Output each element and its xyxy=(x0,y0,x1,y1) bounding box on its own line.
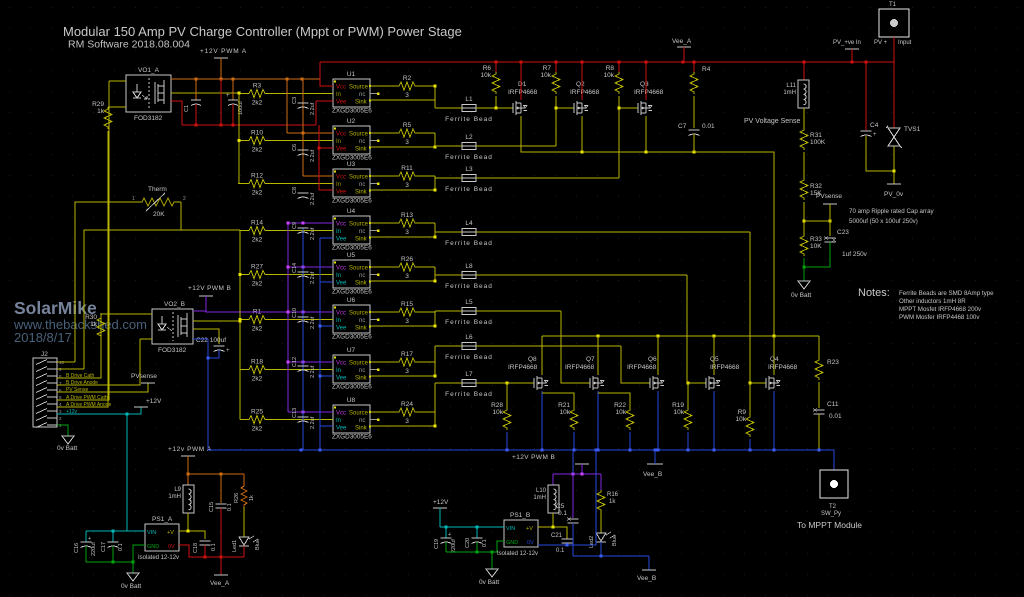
svg-text:Q3: Q3 xyxy=(640,81,649,88)
svg-text:+V: +V xyxy=(167,530,174,536)
svg-text:Source: Source xyxy=(349,266,369,272)
svg-text:2.2uf: 2.2uf xyxy=(310,271,316,284)
svg-text:1: 1 xyxy=(132,196,135,202)
svg-text:Vee: Vee xyxy=(336,281,347,287)
svg-text:Sink: Sink xyxy=(355,190,368,196)
svg-text:L8: L8 xyxy=(465,263,473,270)
svg-text:ZXGD3005E6: ZXGD3005E6 xyxy=(332,245,372,252)
svg-text:Source: Source xyxy=(349,222,369,228)
svg-text:10K: 10K xyxy=(810,243,822,250)
svg-text:PWM Mosfer IRFP4468 100v: PWM Mosfer IRFP4468 100v xyxy=(899,314,980,321)
svg-text:10k: 10k xyxy=(736,416,747,423)
svg-text:L11: L11 xyxy=(786,83,796,89)
svg-text:3: 3 xyxy=(405,182,409,189)
svg-text:VIN: VIN xyxy=(506,526,515,532)
svg-text:nc: nc xyxy=(359,92,365,98)
svg-text:R3: R3 xyxy=(253,83,262,90)
svg-text:IRFP4668: IRFP4668 xyxy=(768,364,798,371)
svg-text:R23: R23 xyxy=(827,359,839,366)
svg-text:Ferrite Bead: Ferrite Bead xyxy=(445,154,493,161)
svg-text:0V: 0V xyxy=(168,544,175,550)
svg-text:Source: Source xyxy=(349,361,369,367)
svg-text:3: 3 xyxy=(405,273,409,280)
svg-text:U5: U5 xyxy=(347,252,356,259)
svg-text:PV_0v: PV_0v xyxy=(884,191,904,198)
svg-text:ZXGD3005E6: ZXGD3005E6 xyxy=(332,289,372,296)
svg-text:R33: R33 xyxy=(810,236,822,243)
svg-text:VIN: VIN xyxy=(147,530,156,536)
svg-text:Sink: Sink xyxy=(355,426,368,432)
svg-text:R5: R5 xyxy=(403,122,412,129)
svg-text:Vee: Vee xyxy=(336,237,347,243)
svg-text:Q5: Q5 xyxy=(710,356,719,363)
svg-text:Vcc: Vcc xyxy=(336,222,346,228)
svg-text:20K: 20K xyxy=(153,211,165,218)
svg-text:R28: R28 xyxy=(491,402,503,409)
svg-text:IRFP4668: IRFP4668 xyxy=(508,364,538,371)
svg-text:1k: 1k xyxy=(609,499,616,505)
svg-text:R24: R24 xyxy=(401,401,413,408)
svg-text:C18: C18 xyxy=(193,543,199,553)
svg-text:L9: L9 xyxy=(174,487,181,493)
svg-text:10k: 10k xyxy=(560,409,571,416)
svg-text:220uf: 220uf xyxy=(91,542,97,556)
svg-text:R26: R26 xyxy=(234,493,240,503)
svg-text:PS1_A: PS1_A xyxy=(152,516,173,523)
svg-text:L5: L5 xyxy=(465,299,473,306)
svg-text:Q2: Q2 xyxy=(576,81,585,88)
svg-text:In: In xyxy=(336,368,341,374)
svg-text:0v Batt: 0v Batt xyxy=(791,292,811,299)
svg-text:Sink: Sink xyxy=(355,237,368,243)
svg-text:10k: 10k xyxy=(616,409,627,416)
svg-text:Therm: Therm xyxy=(148,186,167,193)
svg-text:Vcc: Vcc xyxy=(336,361,346,367)
svg-text:1mH: 1mH xyxy=(783,90,796,96)
svg-text:1k: 1k xyxy=(249,495,255,501)
svg-text:Vee_A: Vee_A xyxy=(210,580,230,587)
svg-text:Vee_B: Vee_B xyxy=(643,471,662,478)
svg-text:Vcc: Vcc xyxy=(336,266,346,272)
svg-text:Vee: Vee xyxy=(336,326,347,332)
svg-text:2k2: 2k2 xyxy=(252,147,263,154)
svg-text:U1: U1 xyxy=(347,71,356,78)
svg-text:T1: T1 xyxy=(889,2,897,8)
svg-text:R17: R17 xyxy=(401,351,413,358)
svg-text:2k2: 2k2 xyxy=(252,100,263,107)
svg-text:0V: 0V xyxy=(527,540,534,546)
svg-text:1uf 250v: 1uf 250v xyxy=(842,251,868,258)
svg-text:3: 3 xyxy=(405,92,409,99)
svg-text:R11: R11 xyxy=(401,165,413,172)
svg-text:C12: C12 xyxy=(292,357,298,367)
svg-text:nc: nc xyxy=(359,418,365,424)
svg-text:RM Software 2018.08.004: RM Software 2018.08.004 xyxy=(68,39,190,51)
svg-text:Blue: Blue xyxy=(612,535,618,546)
svg-text:J2: J2 xyxy=(41,351,48,358)
svg-text:nc: nc xyxy=(359,368,365,374)
svg-text:2.2uf: 2.2uf xyxy=(310,416,316,429)
svg-text:PVsense: PVsense xyxy=(131,373,157,380)
svg-text:L7: L7 xyxy=(465,371,473,378)
svg-text:R9: R9 xyxy=(738,409,747,416)
svg-text:3: 3 xyxy=(405,368,409,375)
svg-text:Vee: Vee xyxy=(336,376,347,382)
svg-text:+12V PWM B: +12V PWM B xyxy=(188,285,231,292)
svg-text:2k2: 2k2 xyxy=(252,190,263,197)
svg-text:Input: Input xyxy=(898,40,912,46)
svg-text:Led2: Led2 xyxy=(589,536,595,548)
svg-text:10k: 10k xyxy=(481,72,492,79)
svg-text:2.2uf: 2.2uf xyxy=(310,192,316,205)
svg-text:Blue: Blue xyxy=(255,539,261,550)
svg-text:220uf: 220uf xyxy=(451,539,457,553)
svg-text:IRFP4668: IRFP4668 xyxy=(508,89,538,96)
svg-text:U6: U6 xyxy=(347,297,356,304)
svg-text:10k: 10k xyxy=(541,72,552,79)
svg-text:R30: R30 xyxy=(85,314,97,321)
svg-text:IRFP4668: IRFP4668 xyxy=(634,89,664,96)
svg-text:C1: C1 xyxy=(184,105,190,112)
svg-text:IRFP4668: IRFP4668 xyxy=(627,364,657,371)
svg-text:C3: C3 xyxy=(292,97,298,104)
svg-text:Vee: Vee xyxy=(336,100,347,106)
svg-text:Source: Source xyxy=(349,132,369,138)
svg-text:R27: R27 xyxy=(251,264,263,271)
svg-text:GND: GND xyxy=(147,544,159,550)
svg-text:0.1: 0.1 xyxy=(211,543,217,551)
svg-text:1mH: 1mH xyxy=(168,494,181,500)
svg-text:nc: nc xyxy=(359,229,365,235)
svg-text:Ferrite Bead: Ferrite Bead xyxy=(445,319,493,326)
svg-text:R32: R32 xyxy=(810,183,822,190)
svg-text:nc: nc xyxy=(359,273,365,279)
svg-text:C4: C4 xyxy=(870,122,879,129)
svg-text:Ferrite Bead: Ferrite Bead xyxy=(445,354,493,361)
svg-text:C21: C21 xyxy=(551,533,563,539)
svg-text:Ferrite Bead: Ferrite Bead xyxy=(445,186,493,193)
svg-text:L10: L10 xyxy=(536,488,547,494)
svg-text:5000uf (50 x 100uf 250v): 5000uf (50 x 100uf 250v) xyxy=(849,218,918,225)
svg-text:+: + xyxy=(873,132,877,138)
svg-text:L2: L2 xyxy=(465,134,473,141)
svg-text:2.2uf: 2.2uf xyxy=(310,149,316,162)
svg-text:Modular 150 Amp PV Charge Cont: Modular 150 Amp PV Charge Controller (Mp… xyxy=(63,24,462,39)
svg-text:0.01: 0.01 xyxy=(829,413,842,420)
svg-text:0v Batt: 0v Batt xyxy=(479,579,499,586)
svg-text:Led1: Led1 xyxy=(232,540,238,552)
svg-text:R19: R19 xyxy=(672,402,684,409)
svg-text:Q6: Q6 xyxy=(648,356,657,363)
svg-text:Vcc: Vcc xyxy=(336,85,346,91)
svg-text:2.2uf: 2.2uf xyxy=(310,316,316,329)
svg-text:ZXGD3005E6: ZXGD3005E6 xyxy=(332,384,372,391)
svg-text:L6: L6 xyxy=(465,334,473,341)
svg-text:R25: R25 xyxy=(251,409,263,416)
svg-text:R26: R26 xyxy=(401,256,413,263)
svg-text:R29: R29 xyxy=(92,101,104,108)
svg-text:0.1: 0.1 xyxy=(556,548,565,554)
svg-text:C22 100uf: C22 100uf xyxy=(196,337,226,344)
svg-text:Vcc: Vcc xyxy=(336,132,346,138)
svg-text:Vee: Vee xyxy=(336,426,347,432)
svg-text:Isolated 12-12v: Isolated 12-12v xyxy=(138,555,179,561)
svg-text:In: In xyxy=(336,92,341,98)
svg-text:10k: 10k xyxy=(604,72,615,79)
svg-text:PV Voltage Sense: PV Voltage Sense xyxy=(744,118,801,125)
svg-text:In: In xyxy=(336,229,341,235)
svg-text:TVS1: TVS1 xyxy=(904,126,921,133)
svg-text:R18: R18 xyxy=(251,359,263,366)
svg-text:PV_+ve In: PV_+ve In xyxy=(833,40,861,46)
svg-text:C13: C13 xyxy=(292,408,298,418)
svg-text:C8: C8 xyxy=(292,187,298,194)
svg-text:10k: 10k xyxy=(493,409,504,416)
svg-text:Q7: Q7 xyxy=(586,356,595,363)
svg-text:+12V PWM B: +12V PWM B xyxy=(512,454,555,461)
svg-text:10k: 10k xyxy=(674,409,685,416)
svg-text:Other inductors 1mH 8R: Other inductors 1mH 8R xyxy=(899,298,966,305)
svg-text:R10: R10 xyxy=(251,130,263,137)
svg-text:Q8: Q8 xyxy=(528,356,537,363)
svg-text:Vee: Vee xyxy=(336,190,347,196)
svg-text:C7: C7 xyxy=(678,123,687,130)
svg-text:2.2uf: 2.2uf xyxy=(310,102,316,115)
svg-text:R31: R31 xyxy=(810,132,822,139)
svg-text:Vcc: Vcc xyxy=(336,175,346,181)
svg-text:GND: GND xyxy=(506,540,518,546)
svg-text:+12V: +12V xyxy=(146,398,162,405)
svg-text:1k: 1k xyxy=(90,321,98,328)
svg-text:R8: R8 xyxy=(606,65,615,72)
svg-text:Vcc: Vcc xyxy=(336,311,346,317)
svg-text:Source: Source xyxy=(349,411,369,417)
svg-text:+12V: +12V xyxy=(433,499,449,506)
svg-text:Isolated 12-12v: Isolated 12-12v xyxy=(497,551,538,557)
svg-text:C15: C15 xyxy=(209,502,215,512)
svg-text:Ferrite Beads are SMD 8Amp typ: Ferrite Beads are SMD 8Amp type xyxy=(899,290,994,297)
svg-text:Ferrite Bead: Ferrite Bead xyxy=(445,283,493,290)
svg-text:1mH: 1mH xyxy=(533,495,546,501)
svg-text:Sink: Sink xyxy=(355,281,368,287)
svg-text:2018/8/17: 2018/8/17 xyxy=(14,330,72,345)
svg-text:C6: C6 xyxy=(292,144,298,151)
svg-text:PVsense: PVsense xyxy=(816,193,842,200)
svg-text:nc: nc xyxy=(359,139,365,145)
svg-text:U2: U2 xyxy=(347,118,356,125)
svg-text:70 amp Ripple rated Cap array: 70 amp Ripple rated Cap array xyxy=(849,208,935,215)
svg-text:+: + xyxy=(88,536,91,542)
svg-text:In: In xyxy=(336,182,341,188)
svg-text:In: In xyxy=(336,318,341,324)
svg-text:VO1_A: VO1_A xyxy=(138,67,160,74)
svg-text:FOD3182: FOD3182 xyxy=(134,115,163,122)
svg-text:2: 2 xyxy=(183,196,186,202)
svg-text:PS1_B: PS1_B xyxy=(510,512,530,519)
svg-text:Vee: Vee xyxy=(336,147,347,153)
svg-text:Vcc: Vcc xyxy=(336,411,346,417)
svg-text:2k2: 2k2 xyxy=(252,376,263,383)
svg-text:3: 3 xyxy=(405,318,409,325)
svg-text:U3: U3 xyxy=(347,161,356,168)
svg-text:U4: U4 xyxy=(347,208,356,215)
svg-text:C11: C11 xyxy=(827,401,839,408)
svg-text:Source: Source xyxy=(349,85,369,91)
svg-text:C16: C16 xyxy=(74,543,80,553)
svg-text:C10: C10 xyxy=(292,308,298,318)
svg-text:L1: L1 xyxy=(465,96,473,103)
svg-text:+12V PWM A: +12V PWM A xyxy=(200,48,247,55)
svg-text:1k: 1k xyxy=(97,108,105,115)
svg-text:C23: C23 xyxy=(837,229,849,236)
svg-text:0.1: 0.1 xyxy=(558,510,567,517)
svg-text:R4: R4 xyxy=(702,66,711,73)
svg-text:R22: R22 xyxy=(614,402,626,409)
svg-text:In: In xyxy=(336,139,341,145)
svg-text:+12v PWM A: +12v PWM A xyxy=(168,446,212,453)
svg-text:Sink: Sink xyxy=(355,376,368,382)
svg-text:L3: L3 xyxy=(465,166,473,173)
svg-text:Sink: Sink xyxy=(355,326,368,332)
svg-text:0v Batt: 0v Batt xyxy=(121,583,141,590)
svg-text:U7: U7 xyxy=(347,347,356,354)
svg-text:ZXGD3005E6: ZXGD3005E6 xyxy=(332,198,372,205)
svg-text:2k2: 2k2 xyxy=(252,326,263,333)
svg-text:2.2uf: 2.2uf xyxy=(310,227,316,240)
svg-text:nc: nc xyxy=(359,182,365,188)
svg-text:IRFP4668: IRFP4668 xyxy=(570,89,600,96)
svg-text:R7: R7 xyxy=(543,65,552,72)
svg-text:Q4: Q4 xyxy=(770,356,779,363)
svg-text:C17: C17 xyxy=(101,542,107,552)
svg-text:ZXGD3005E6: ZXGD3005E6 xyxy=(332,334,372,341)
svg-text:0.1: 0.1 xyxy=(118,543,124,551)
svg-text:Notes:: Notes: xyxy=(858,287,890,299)
svg-text:3: 3 xyxy=(405,418,409,425)
svg-text:T2: T2 xyxy=(829,504,837,510)
svg-text:To MPPT Module: To MPPT Module xyxy=(797,520,862,530)
svg-text:+V: +V xyxy=(526,526,533,532)
svg-text:0.1: 0.1 xyxy=(482,539,488,547)
svg-text:C14: C14 xyxy=(292,263,298,273)
svg-text:In: In xyxy=(336,418,341,424)
svg-text:IRFP4668: IRFP4668 xyxy=(710,364,740,371)
svg-text:U8: U8 xyxy=(347,397,356,404)
svg-text:ZXGD3005E6: ZXGD3005E6 xyxy=(332,108,372,115)
svg-text:R14: R14 xyxy=(251,220,263,227)
svg-text:C5: C5 xyxy=(556,503,565,510)
svg-text:FOD3182: FOD3182 xyxy=(158,347,187,354)
svg-text:0.01: 0.01 xyxy=(702,123,715,130)
svg-text:2k2: 2k2 xyxy=(252,426,263,433)
svg-text:IRFP4668: IRFP4668 xyxy=(565,364,595,371)
svg-text:Ferrite Bead: Ferrite Bead xyxy=(445,240,493,247)
svg-text:PV +: PV + xyxy=(874,40,888,46)
svg-text:3: 3 xyxy=(405,139,409,146)
svg-text:Ferrite Bead: Ferrite Bead xyxy=(445,391,493,398)
svg-text:Source: Source xyxy=(349,175,369,181)
svg-text:R12: R12 xyxy=(251,173,263,180)
svg-text:Ferrite Bead: Ferrite Bead xyxy=(445,116,493,123)
svg-text:D1: D1 xyxy=(518,81,527,88)
svg-text:Vee_A: Vee_A xyxy=(672,38,692,45)
svg-text:Vee_B: Vee_B xyxy=(637,575,656,582)
svg-text:0v Batt: 0v Batt xyxy=(57,445,77,452)
svg-text:SW_Py: SW_Py xyxy=(821,511,841,517)
svg-text:R13: R13 xyxy=(401,212,413,219)
svg-text:MPPT Mosfet IRFP4668 200v: MPPT Mosfet IRFP4668 200v xyxy=(899,306,982,313)
svg-text:2.2uf: 2.2uf xyxy=(310,365,316,378)
svg-text:3: 3 xyxy=(405,229,409,236)
svg-text:ZXGD3005E6: ZXGD3005E6 xyxy=(332,434,372,441)
svg-text:Source: Source xyxy=(349,311,369,317)
svg-text:C20: C20 xyxy=(465,538,471,548)
svg-text:+: + xyxy=(226,93,230,99)
svg-text:C19: C19 xyxy=(434,539,440,549)
svg-text:C9: C9 xyxy=(292,222,298,229)
svg-text:nc: nc xyxy=(359,318,365,324)
svg-text:R6: R6 xyxy=(483,65,492,72)
svg-text:VO2_B: VO2_B xyxy=(164,301,185,308)
svg-text:+: + xyxy=(226,348,230,354)
svg-text:L4: L4 xyxy=(465,220,473,227)
svg-text:R15: R15 xyxy=(401,301,413,308)
svg-text:+: + xyxy=(448,532,451,538)
svg-text:R21: R21 xyxy=(558,402,570,409)
svg-text:Sink: Sink xyxy=(355,147,368,153)
svg-text:2k2: 2k2 xyxy=(252,281,263,288)
svg-text:R2: R2 xyxy=(403,75,412,82)
svg-text:2k2: 2k2 xyxy=(252,237,263,244)
svg-text:0.1: 0.1 xyxy=(227,503,233,511)
svg-text:In: In xyxy=(336,273,341,279)
svg-text:R16: R16 xyxy=(607,492,619,498)
svg-text:Sink: Sink xyxy=(355,100,368,106)
svg-text:100K: 100K xyxy=(810,139,826,146)
